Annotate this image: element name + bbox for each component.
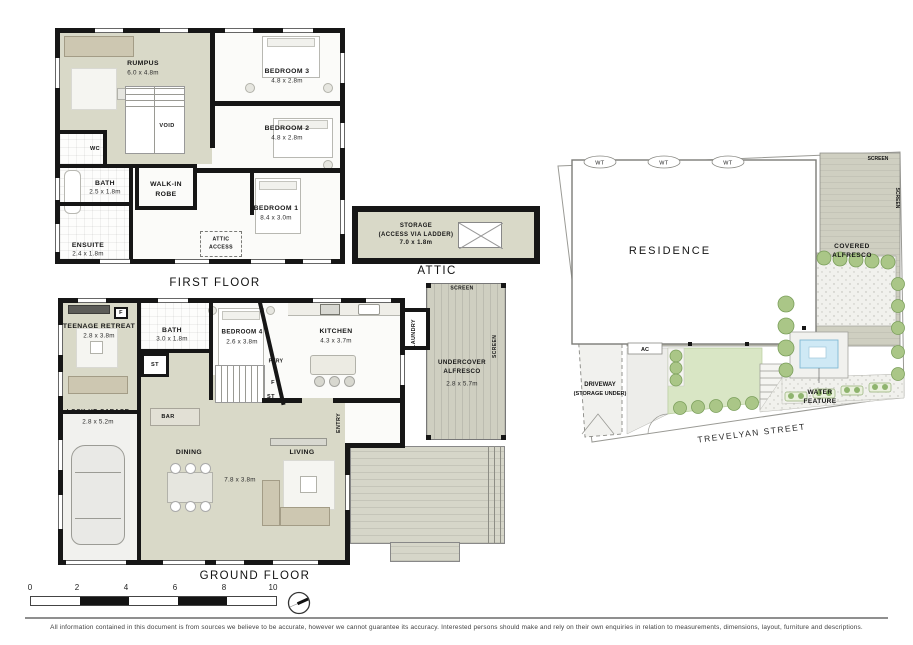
attic-hatch-cross <box>459 223 503 249</box>
wall-segment <box>210 33 215 106</box>
deck-steps <box>483 446 505 544</box>
stool <box>314 376 325 387</box>
kitchen-island <box>310 355 356 375</box>
living-sofa-corner <box>262 480 280 526</box>
rumpus-rug <box>71 68 117 110</box>
driveway-label-2: (STORAGE UNDER) <box>574 391 627 397</box>
window <box>95 28 123 33</box>
bedside-table <box>323 83 333 93</box>
wall-segment <box>103 130 107 168</box>
wc-label: WC <box>90 145 100 153</box>
deck-post <box>426 283 431 288</box>
screen-side-label: SCREEN <box>894 188 900 209</box>
wall-segment <box>60 164 135 168</box>
store-label: ST <box>151 361 159 369</box>
bedroom3-dims: 4.8 x 2.8m <box>271 76 302 85</box>
window <box>313 298 341 303</box>
window <box>58 495 63 529</box>
rumpus-sofa <box>64 36 134 57</box>
garage-label: LOCK-UP GARAGE <box>67 409 130 418</box>
bar-counter <box>150 408 200 426</box>
walk-in-robe-label: WALK-IN ROBE <box>150 180 182 200</box>
wall-segment <box>137 303 141 414</box>
stair-treads <box>125 86 185 112</box>
ground-floor-plan: TEENAGE RETREAT 2.8 x 3.8m F BATH 3.0 x … <box>58 280 508 578</box>
driveway-label-1: DRIVEWAY <box>584 382 615 388</box>
window <box>216 560 244 565</box>
window <box>158 298 188 303</box>
scale-segment <box>80 597 129 605</box>
wall-segment <box>141 349 211 353</box>
window <box>58 372 63 396</box>
window <box>175 259 209 264</box>
teenage-retreat-dims: 2.8 x 3.8m <box>83 331 114 340</box>
deck-post <box>426 435 431 440</box>
bedroom4-label: BEDROOM 4 <box>221 329 262 338</box>
bedroom4-dims: 2.6 x 3.8m <box>226 337 257 346</box>
screen-side-label: SCREEN <box>492 328 498 358</box>
car-windshield <box>75 472 121 473</box>
window <box>340 123 345 148</box>
wt2-label: WT <box>659 161 669 167</box>
living-dining-dims: 7.8 x 3.8m <box>224 475 255 484</box>
compass-icon <box>286 590 312 616</box>
living-sofa <box>280 507 330 526</box>
scale-tick-2: 2 <box>75 583 79 592</box>
window <box>400 355 405 385</box>
window <box>340 53 345 83</box>
teenage-retreat-label: TEENAGE RETREAT <box>63 322 135 332</box>
window <box>366 298 391 303</box>
window <box>66 560 126 565</box>
bedroom3-label: BEDROOM 3 <box>265 67 310 77</box>
wall-segment <box>350 443 405 448</box>
window <box>303 259 331 264</box>
media-unit <box>270 438 327 446</box>
street-label: TREVELYAN STREET <box>697 421 807 444</box>
bath-dims: 2.5 x 1.8m <box>89 187 120 196</box>
water-feature-label-1: WATER <box>808 389 833 396</box>
garage-dims: 2.8 x 5.2m <box>82 417 113 426</box>
wt3-label: WT <box>723 161 733 167</box>
stool <box>344 376 355 387</box>
wall-segment <box>197 168 345 173</box>
rumpus-dims: 6.0 x 4.8m <box>127 68 158 77</box>
entry-label: ENTRY <box>336 405 342 433</box>
fridge-teen-label: F <box>119 309 123 317</box>
bar-label: BAR <box>161 413 174 421</box>
dining-table <box>167 472 213 503</box>
stair-divider <box>154 86 155 154</box>
window <box>283 28 313 33</box>
kitchen-bench <box>288 303 400 316</box>
window <box>251 259 285 264</box>
attic-access-label: ATTIC ACCESS <box>209 236 233 251</box>
teen-sofa <box>68 376 128 394</box>
covered-alfresco-label-1: COVERED <box>834 243 870 250</box>
water-feature-label-2: FEATURE <box>803 398 836 405</box>
window <box>78 298 106 303</box>
ensuite-dims: 2.4 x 1.8m <box>72 249 103 258</box>
stool <box>329 376 340 387</box>
wall-segment <box>58 298 405 303</box>
fridge2-label: F <box>271 379 275 387</box>
window <box>163 560 205 565</box>
ac-label: AC <box>641 347 649 353</box>
bedside-table <box>245 83 255 93</box>
sink <box>358 304 380 315</box>
dining-chair <box>200 463 211 474</box>
wall-segment <box>129 164 133 263</box>
wall-segment <box>210 106 215 148</box>
living-table <box>300 476 317 493</box>
scale-segment <box>129 597 178 605</box>
screen-top-label: SCREEN <box>450 285 473 292</box>
car-rear-window <box>75 518 121 519</box>
car <box>71 445 125 545</box>
dining-chair <box>185 463 196 474</box>
teen-tv-unit <box>68 305 110 314</box>
attic-plan: STORAGE (ACCESS VIA LADDER) 7.0 x 1.8m <box>352 206 540 264</box>
bedroom1-label: BEDROOM 1 <box>254 204 299 214</box>
dining-chair <box>200 501 211 512</box>
dining-chair <box>170 463 181 474</box>
teen-rug-table <box>90 341 103 354</box>
wall-segment <box>137 414 141 560</box>
bedroom3-pillow <box>267 38 315 47</box>
deck-post <box>501 283 506 288</box>
scale-tick-0: 0 <box>28 583 32 592</box>
residence-label: RESIDENCE <box>629 245 711 257</box>
scale-tick-10: 10 <box>269 583 278 592</box>
bath-gf-dims: 3.0 x 1.8m <box>156 334 187 343</box>
attic-storage-label: STORAGE (ACCESS VIA LADDER) 7.0 x 1.8m <box>379 222 454 248</box>
scale-bar-track <box>30 596 277 606</box>
bedside-table <box>266 306 275 315</box>
bedroom1-dims: 8.4 x 3.0m <box>260 213 291 222</box>
pantry-label: PTRY <box>269 358 284 365</box>
store2-label: ST <box>267 393 275 401</box>
scale-tick-8: 8 <box>222 583 226 592</box>
water-feature-inner <box>809 347 826 358</box>
floorplan-page: VOID RUMPUS 6.0 x 4.8m BEDROOM 3 4.8 x 2… <box>0 0 913 645</box>
wall-segment <box>60 130 106 134</box>
stove <box>320 304 340 315</box>
window <box>58 440 63 470</box>
scale-tick-4: 4 <box>124 583 128 592</box>
wall-segment <box>60 202 132 206</box>
alfresco-dims: 2.8 x 5.7m <box>446 379 477 388</box>
dining-chair <box>170 501 181 512</box>
bedroom2-label: BEDROOM 2 <box>265 124 310 134</box>
window <box>225 28 253 33</box>
window <box>273 560 318 565</box>
scale-bar: 0 2 4 6 8 10 <box>28 583 288 609</box>
site-plan: WT WT WT RESIDENCE COVERED ALFRESCO SCRE… <box>552 146 910 458</box>
covered-alfresco-label-2: ALFRESCO <box>832 252 872 259</box>
kitchen-label: KITCHEN <box>319 327 352 337</box>
window <box>340 200 345 234</box>
laundry-label: LAUNDRY <box>411 312 417 348</box>
footer-divider <box>25 617 888 619</box>
gf-stairs <box>215 365 265 403</box>
attic-hatch <box>458 222 502 248</box>
window <box>55 178 60 200</box>
alfresco-label: UNDERCOVER ALFRESCO <box>438 359 486 377</box>
bedroom4-pillow <box>222 311 260 320</box>
window <box>345 475 350 510</box>
dining-chair <box>185 501 196 512</box>
wt1-label: WT <box>595 161 605 167</box>
deck-step-lower <box>390 542 460 562</box>
attic-title: ATTIC <box>387 265 487 277</box>
disclaimer-text: All information contained in this docume… <box>0 624 913 631</box>
kitchen-dims: 4.3 x 3.7m <box>320 336 351 345</box>
scale-segment <box>31 597 80 605</box>
bath-tub <box>64 170 81 214</box>
bedroom2-dims: 4.8 x 2.8m <box>271 133 302 142</box>
window <box>55 224 60 252</box>
bedroom1-pillow <box>259 181 297 190</box>
void-label: VOID <box>159 122 174 130</box>
wall-segment <box>333 398 400 403</box>
dining-label: DINING <box>176 448 202 458</box>
entry-deck <box>350 446 505 544</box>
rumpus-label: RUMPUS <box>127 59 159 69</box>
wall-segment <box>210 101 345 106</box>
scale-segment <box>178 597 227 605</box>
window <box>55 58 60 88</box>
scale-segment <box>227 597 276 605</box>
ground-floor-title: GROUND FLOOR <box>155 570 355 582</box>
screen-top-label: SCREEN <box>868 156 889 162</box>
living-label: LIVING <box>289 448 314 458</box>
window <box>160 28 188 33</box>
first-floor-plan: VOID RUMPUS 6.0 x 4.8m BEDROOM 3 4.8 x 2… <box>55 28 345 264</box>
deck-post <box>501 435 506 440</box>
window <box>100 259 130 264</box>
scale-tick-6: 6 <box>173 583 177 592</box>
